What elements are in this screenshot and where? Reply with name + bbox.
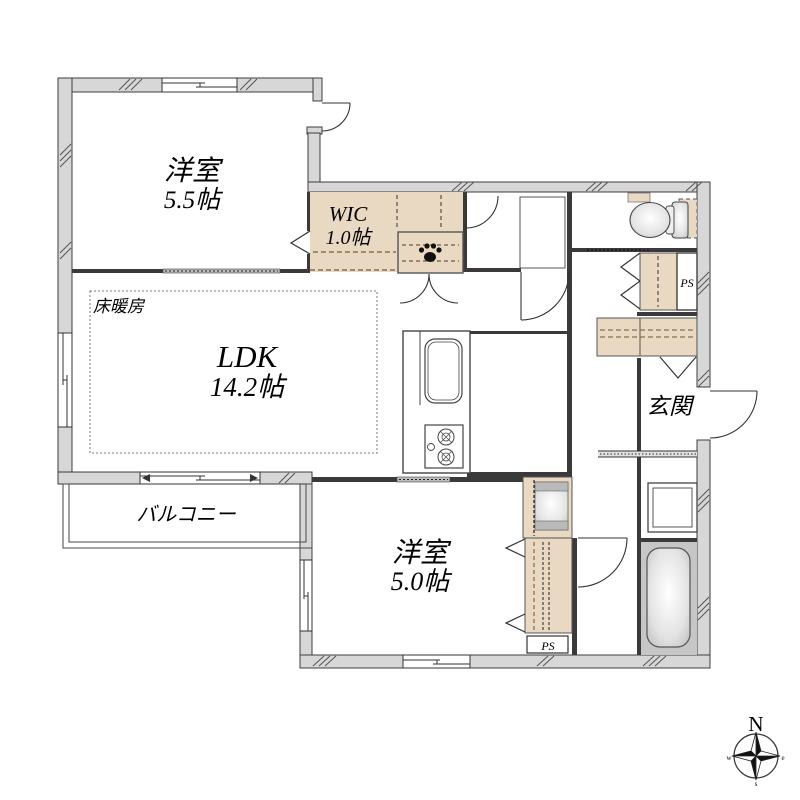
- wall-bathroom-north: [637, 538, 697, 542]
- wall-bottom-right: [470, 655, 710, 668]
- door-washroom: [578, 538, 627, 587]
- window-room-b-left: [300, 560, 312, 631]
- room-a-label: 洋室: [164, 156, 224, 187]
- pipe-space-bottom-label: PS: [540, 639, 554, 653]
- sliding-door-room-b: [397, 477, 450, 482]
- wall-right-lower: [697, 440, 710, 668]
- wic-area: [291, 192, 463, 273]
- wall-room-a-south-right: [280, 269, 310, 273]
- door-wic: [466, 196, 498, 228]
- ldk-label: LDK: [216, 339, 280, 374]
- folding-door-mark: [506, 614, 525, 632]
- toilet-fixture: [630, 202, 688, 238]
- wall-ldk-south-a: [58, 472, 140, 484]
- ldk-area: 14.2帖: [210, 372, 288, 402]
- entrance-step: [598, 451, 697, 457]
- room-b-area: 5.0帖: [391, 567, 454, 596]
- wall-entrance-west-lower: [637, 457, 641, 538]
- window-room-b-bottom: [403, 655, 470, 668]
- vanity-unit: [523, 477, 572, 538]
- entrance-label: 玄関: [646, 394, 695, 419]
- folding-door-mark: [291, 231, 310, 254]
- wall-ps-row-south: [637, 312, 697, 316]
- wall-room-b-north-a: [312, 477, 397, 482]
- floor-heating-label: 床暖房: [93, 297, 146, 316]
- wic-area: 1.0帖: [326, 227, 374, 249]
- kitchen-stove: [425, 425, 463, 468]
- window-ldk-balcony-sliding: [140, 472, 260, 484]
- sliding-door-room-a: [163, 269, 280, 273]
- wall-top-cap: [313, 78, 322, 101]
- wall-top-right: [308, 182, 710, 192]
- balcony-label: バルコニー: [136, 504, 237, 526]
- room-a-area: 5.5帖: [164, 187, 223, 214]
- room-b-closet: [506, 538, 572, 633]
- bathroom: [641, 542, 697, 655]
- folding-door-mark: [621, 281, 640, 309]
- wall-bottom-left: [300, 655, 403, 668]
- wall-wic-left-upper: [307, 192, 310, 231]
- wall-bathroom-west: [637, 538, 641, 655]
- compass: N w e s: [726, 712, 784, 788]
- pet-nook: [398, 232, 463, 273]
- floor-plan-canvas: PS 玄関 PS: [0, 0, 800, 800]
- folding-door-mark: [621, 253, 640, 281]
- kitchen: [403, 331, 470, 473]
- double-door-pet-nook: [400, 274, 458, 303]
- wall-step-vertical: [308, 133, 320, 185]
- exterior-walls: [58, 78, 710, 668]
- wall-hall-north: [463, 268, 521, 272]
- pipe-space-right-label: PS: [679, 276, 693, 290]
- door-entrance-front: [710, 391, 757, 438]
- compass-star: [732, 732, 780, 780]
- door-hall-to-ldk: [521, 272, 569, 320]
- window-ldk-left: [58, 333, 72, 427]
- wall-wic-left-lower: [307, 254, 310, 272]
- wall-hatches: [60, 79, 709, 666]
- toilet-room: [628, 193, 697, 238]
- wall-room-b-left-lower: [300, 631, 312, 655]
- window-room-a-top: [162, 78, 237, 92]
- wall-washroom-north: [467, 472, 572, 477]
- bathtub: [647, 548, 690, 647]
- wall-top-left-a: [58, 78, 162, 92]
- wall-corridor-west: [567, 192, 572, 477]
- folding-door-mark: [660, 357, 696, 378]
- balcony: バルコニー: [63, 484, 312, 548]
- compass-west-label: w: [726, 754, 732, 762]
- laundry-pan: [648, 483, 697, 532]
- fridge-space: [520, 197, 565, 268]
- kitchen-sink: [425, 339, 462, 403]
- room-b-label: 洋室: [392, 538, 452, 569]
- wall-toilet-south: [572, 248, 697, 252]
- door-room-a-exterior: [322, 103, 350, 131]
- compass-north-label: N: [748, 712, 763, 736]
- pipe-space-bottom: PS: [527, 636, 568, 653]
- compass-east-label: e: [781, 754, 784, 762]
- wall-washroom-west: [572, 538, 577, 655]
- folding-door-mark: [506, 539, 525, 557]
- toilet-shelf: [628, 193, 650, 202]
- wall-top-left-b: [237, 78, 313, 92]
- wall-room-b-north-b: [450, 477, 523, 482]
- wall-room-a-south-left: [72, 269, 163, 273]
- hall-closet-row: PS: [621, 253, 697, 310]
- entrance-area: 玄関: [597, 318, 697, 457]
- compass-south-label: s: [755, 780, 758, 788]
- wic-label: WIC: [329, 202, 368, 226]
- wall-left-upper: [58, 78, 72, 333]
- wall-entrance-west: [637, 358, 641, 452]
